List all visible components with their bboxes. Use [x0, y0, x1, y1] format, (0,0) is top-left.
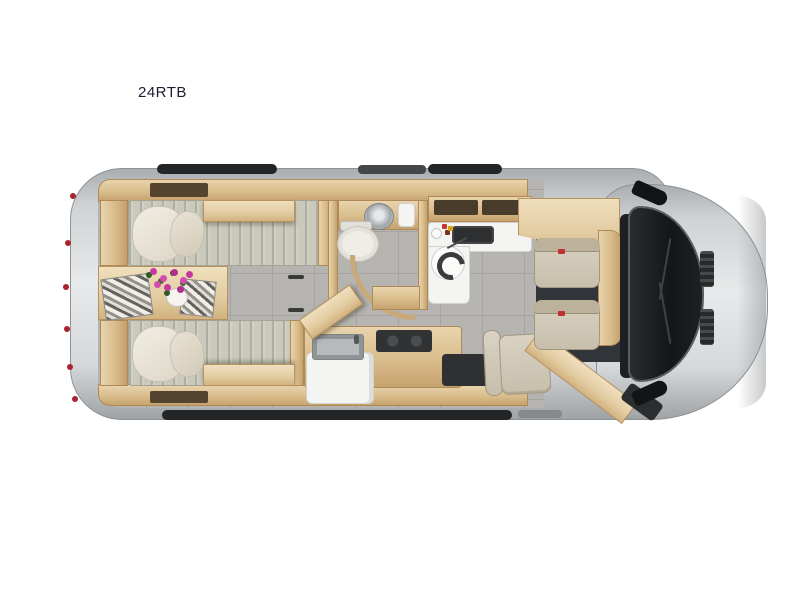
- bed-pull-handle-bottom: [288, 308, 304, 312]
- tail-lights: [70, 193, 76, 199]
- front-cabinet-side: [598, 230, 622, 346]
- hood-vent-bottom: [700, 309, 714, 345]
- roof-trim-awning: [157, 164, 277, 174]
- bed-pull-handle-top: [288, 275, 304, 279]
- vehicle-floorplan: [0, 0, 800, 600]
- counter-garnish: [442, 224, 447, 229]
- galley-faucet: [354, 335, 359, 344]
- hood-vent-top: [700, 251, 714, 287]
- front-bumper: [738, 196, 766, 408]
- floorplan-page: 24RTB: [0, 0, 800, 600]
- passenger-seatbelt-tab: [558, 311, 565, 316]
- driver-seatbelt-tab: [558, 249, 565, 254]
- soap-dispenser: [431, 228, 442, 239]
- driver-seat-backrest: [534, 238, 600, 252]
- wall-cabinet-open-shelf-top: [150, 183, 208, 197]
- counter-shelf-slot-1: [434, 200, 478, 215]
- roof-trim-window: [428, 164, 502, 174]
- roof-trim-bottom: [162, 410, 512, 420]
- flower-bouquet: [150, 268, 157, 275]
- passenger-seat-backrest: [534, 300, 600, 314]
- headboard-cabinet-top: [100, 200, 128, 266]
- roof-trim-vent: [358, 165, 426, 174]
- cooktop: [376, 330, 432, 352]
- headboard-cabinet-bottom: [100, 320, 128, 386]
- shower-bench: [372, 286, 420, 310]
- overhead-cabinet-top-bed: [203, 200, 295, 222]
- flower-dish: [166, 288, 188, 307]
- bathroom-wall-left: [328, 200, 338, 308]
- vanity-tray: [398, 203, 415, 227]
- magazine-stack-1: [100, 273, 153, 321]
- overhead-cabinet-bottom-bed: [203, 364, 295, 386]
- roof-trim-bottom-2: [518, 410, 562, 418]
- wall-cabinet-open-shelf-bottom: [150, 391, 208, 403]
